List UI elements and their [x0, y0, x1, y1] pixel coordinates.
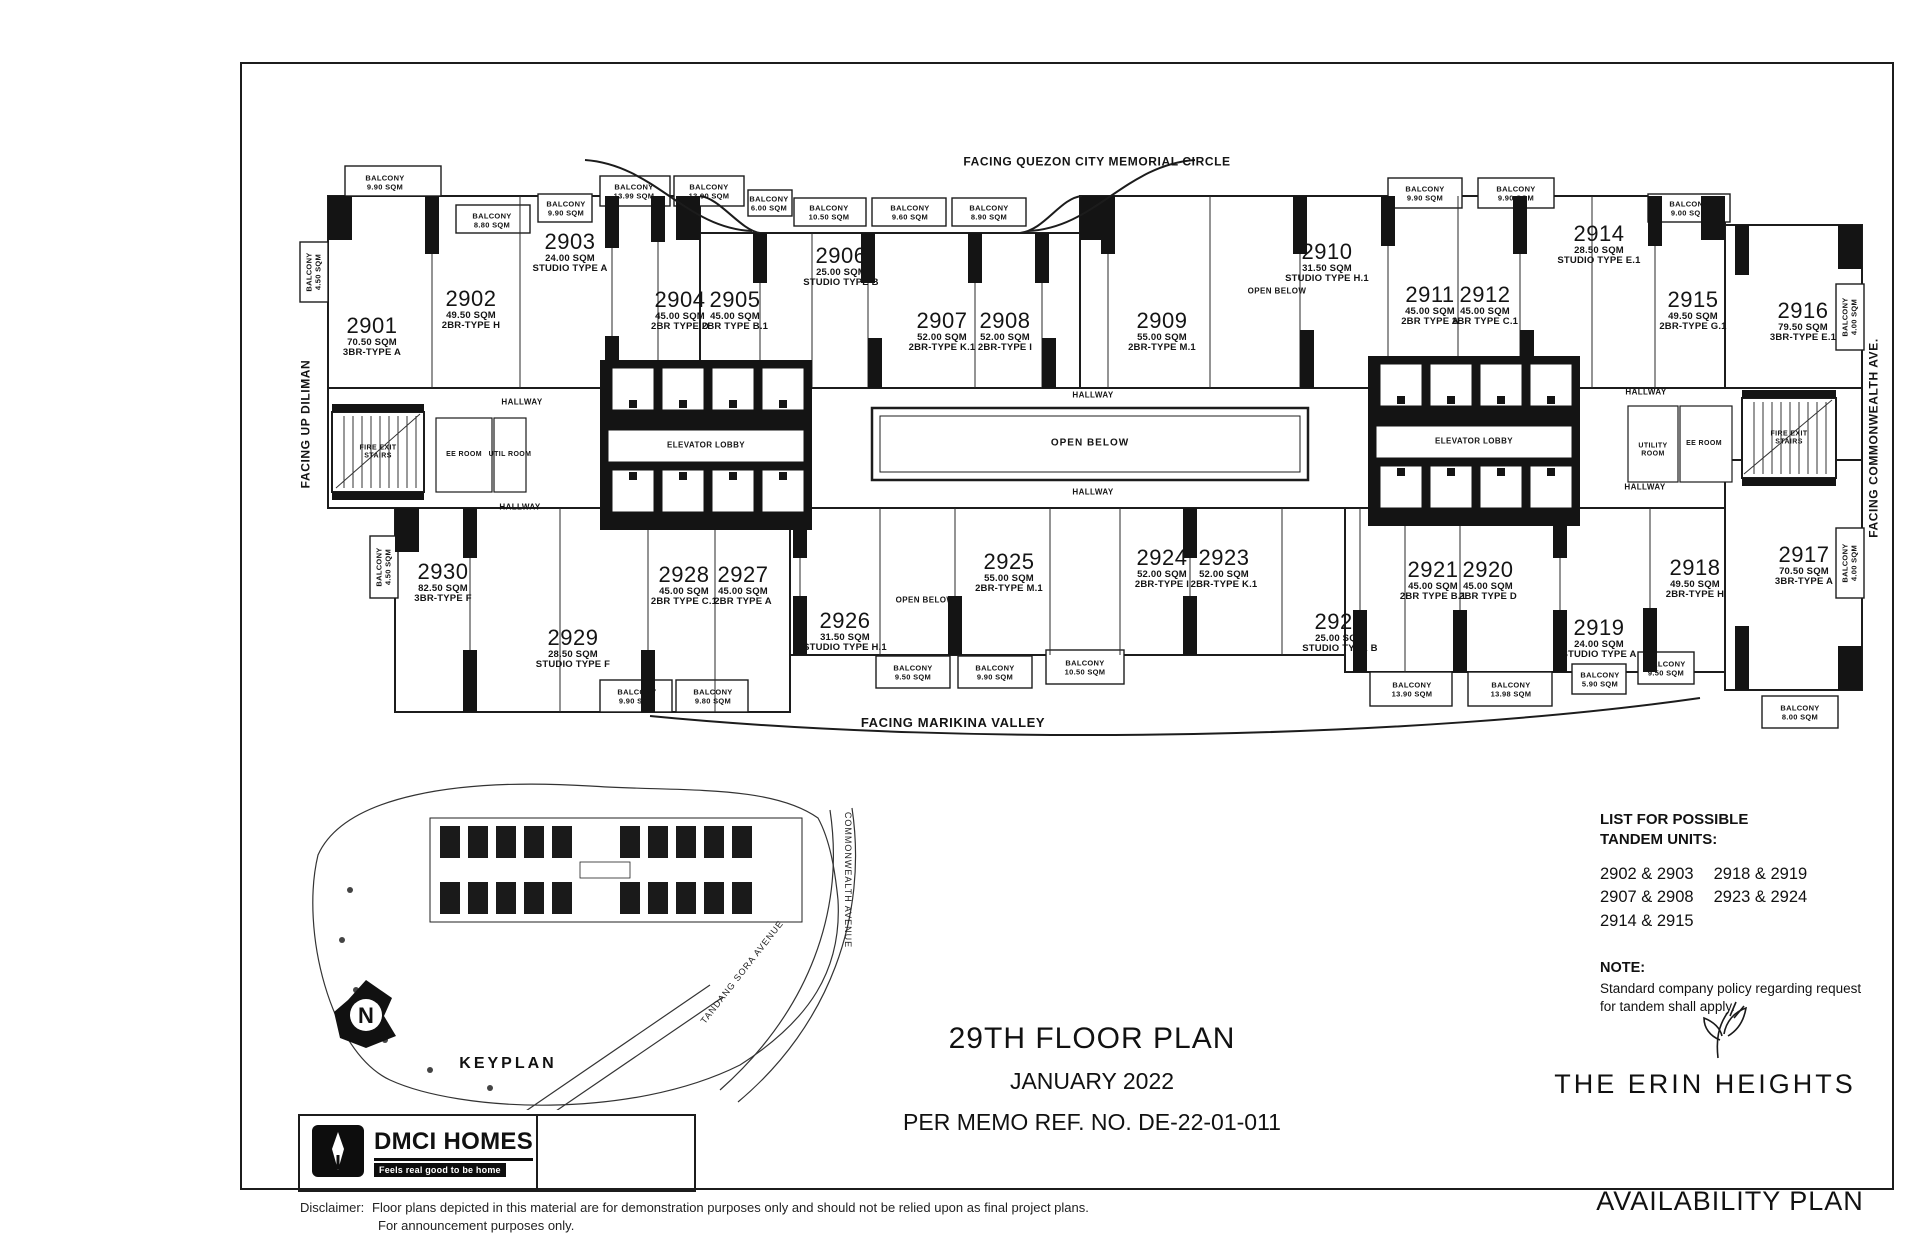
unit-label-2921: 292145.00 SQM2BR TYPE B.1	[1374, 558, 1492, 602]
elevator-lobby-label: ELEVATOR LOBBY	[667, 442, 745, 451]
ee-room-label: EE ROOM	[441, 451, 487, 459]
title-block: 29TH FLOOR PLAN JANUARY 2022 PER MEMO RE…	[877, 1022, 1307, 1136]
unit-type: 2BR TYPE C.1	[1426, 317, 1544, 327]
unit-number: 2925	[950, 550, 1068, 574]
tandem-pair: 2902 & 2903	[1600, 863, 1694, 887]
hallway-label: HALLWAY	[1625, 389, 1666, 398]
util-room-label: UTIL ROOM	[487, 451, 533, 459]
balcony-label: BALCONY4.00 SQM	[1841, 543, 1860, 582]
unit-label-2902: 290249.50 SQM2BR-TYPE H	[412, 287, 530, 331]
unit-number: 2908	[946, 309, 1064, 333]
keyplan-label: KEYPLAN	[459, 1055, 556, 1073]
unit-number: 2921	[1374, 558, 1492, 582]
tandem-pair: 2918 & 2919	[1714, 863, 1808, 887]
erin-heights-logo: THE ERIN HEIGHTS	[1545, 1000, 1865, 1100]
disclaimer-label: Disclaimer:	[300, 1200, 372, 1215]
open-below-label: OPEN BELOW	[1248, 288, 1307, 297]
hallway-label: HALLWAY	[501, 399, 542, 408]
balcony-label: BALCONY9.90 SQM	[1496, 185, 1535, 204]
balcony-label: BALCONY10.50 SQM	[809, 204, 850, 223]
open-below-label: OPEN BELOW	[1051, 439, 1129, 450]
balcony-label: BALCONY4.00 SQM	[1841, 297, 1860, 336]
balcony-label: BALCONY9.60 SQM	[890, 204, 929, 223]
unit-type: STUDIO TYPE A	[511, 264, 629, 274]
unit-label-2910: 291031.50 SQMSTUDIO TYPE H.1	[1268, 240, 1386, 284]
unit-type: STUDIO TYPE H.1	[1268, 274, 1386, 284]
unit-number: 2905	[676, 288, 794, 312]
brand-name: THE ERIN HEIGHTS	[1545, 1069, 1865, 1100]
unit-label-2903: 290324.00 SQMSTUDIO TYPE A	[511, 230, 629, 274]
unit-label-2918: 291849.50 SQM2BR-TYPE H	[1636, 556, 1754, 600]
unit-type: STUDIO TYPE E.1	[1540, 256, 1658, 266]
unit-label-2915: 291549.50 SQM2BR-TYPE G.1	[1634, 288, 1752, 332]
disclaimer: Disclaimer:Floor plans depicted in this …	[300, 1200, 1089, 1233]
unit-type: STUDIO TYPE A	[1540, 650, 1658, 660]
keyplan-drawing	[290, 770, 880, 1110]
unit-number: 2910	[1268, 240, 1386, 264]
balcony-label: BALCONY9.90 SQM	[365, 174, 404, 193]
unit-label-2909: 290955.00 SQM2BR-TYPE M.1	[1103, 309, 1221, 353]
hallway-label: HALLWAY	[499, 504, 540, 513]
north-arrow-icon: N	[330, 978, 402, 1050]
unit-number: 2906	[782, 244, 900, 268]
unit-label-2925: 292555.00 SQM2BR-TYPE M.1	[950, 550, 1068, 594]
unit-number: 2914	[1540, 222, 1658, 246]
unit-type: 2BR-TYPE H	[1636, 590, 1754, 600]
unit-number: 2924	[1103, 546, 1221, 570]
unit-label-2924: 292452.00 SQM2BR-TYPE I	[1103, 546, 1221, 590]
unit-type: 2BR-TYPE G.1	[1634, 322, 1752, 332]
floor-plan-date: JANUARY 2022	[877, 1068, 1307, 1095]
tandem-note-title: NOTE:	[1600, 960, 1880, 976]
floor-plan-title: 29TH FLOOR PLAN	[877, 1022, 1307, 1056]
floor-plan-sheet: N FACING QUEZON CITY MEMORIAL CIRCLE FAC…	[0, 0, 1920, 1256]
tandem-pair: 2907 & 2908	[1600, 886, 1694, 910]
ee-room-label: EE ROOM	[1681, 440, 1727, 448]
balcony-label: BALCONY5.90 SQM	[1580, 671, 1619, 690]
title-block-empty-cell	[534, 1114, 696, 1192]
unit-number: 2915	[1634, 288, 1752, 312]
unit-label-2928: 292845.00 SQM2BR TYPE C.1	[625, 563, 743, 607]
balcony-label: BALCONY4.50 SQM	[375, 547, 394, 586]
elevator-lobby-label: ELEVATOR LOBBY	[1435, 438, 1513, 447]
fire-exit-stairs-label: FIRE EXIT STAIRS	[1766, 430, 1812, 445]
hallway-label: HALLWAY	[1072, 392, 1113, 401]
dmci-icon	[312, 1125, 364, 1177]
unit-label-2908: 290852.00 SQM2BR-TYPE I	[946, 309, 1064, 353]
unit-type: 3BR-TYPE A	[313, 348, 431, 358]
tandem-pair: 2923 & 2924	[1714, 886, 1808, 910]
unit-type: 3BR-TYPE F	[384, 594, 502, 604]
unit-type: 2BR TYPE B.1	[1374, 592, 1492, 602]
open-below-label: OPEN BELOW	[896, 597, 955, 606]
fire-exit-stairs-label: FIRE EXIT STAIRS	[355, 444, 401, 459]
balcony-label: BALCONY9.90 SQM	[546, 200, 585, 219]
unit-type: 2BR-TYPE H	[412, 321, 530, 331]
unit-number: 2912	[1426, 283, 1544, 307]
balcony-label: BALCONY9.50 SQM	[1646, 660, 1685, 679]
dmci-logo-box: DMCI HOMES Feels real good to be home	[298, 1114, 538, 1192]
disclaimer-line1: Floor plans depicted in this material ar…	[372, 1200, 1089, 1215]
balcony-label: BALCONY13.99 SQM	[614, 183, 655, 202]
north-letter: N	[358, 1003, 374, 1028]
unit-number: 2926	[786, 609, 904, 633]
unit-type: 2BR TYPE C.1	[625, 597, 743, 607]
unit-number: 2922	[1281, 610, 1399, 634]
balcony-label: BALCONY8.80 SQM	[472, 212, 511, 231]
unit-number: 2918	[1636, 556, 1754, 580]
balcony-label: BALCONY9.00 SQM	[1669, 200, 1708, 219]
unit-label-2929: 292928.50 SQMSTUDIO TYPE F	[514, 626, 632, 670]
tandem-title-line2: TANDEM UNITS:	[1600, 830, 1880, 850]
memo-reference: PER MEMO REF. NO. DE-22-01-011	[877, 1109, 1307, 1136]
availability-plan-label: AVAILABILITY PLAN	[1580, 1186, 1880, 1217]
unit-type: 2BR-TYPE I	[946, 343, 1064, 353]
unit-number: 2930	[384, 560, 502, 584]
balcony-label: BALCONY8.90 SQM	[969, 204, 1008, 223]
balcony-label: BALCONY4.50 SQM	[305, 252, 324, 291]
unit-number: 2909	[1103, 309, 1221, 333]
utility-room-label: UTILITY ROOM	[1630, 442, 1676, 457]
tandem-pair: 2914 & 2915	[1600, 910, 1694, 934]
balcony-label: BALCONY9.90 SQM	[1405, 185, 1444, 204]
unit-type: 2BR-TYPE M.1	[1103, 343, 1221, 353]
unit-label-2926: 292631.50 SQMSTUDIO TYPE H.1	[786, 609, 904, 653]
facing-top-label: FACING QUEZON CITY MEMORIAL CIRCLE	[963, 156, 1230, 169]
facing-right-label: FACING COMMONWEALTH AVE.	[1868, 338, 1881, 538]
facing-left-label: FACING UP DILIMAN	[300, 360, 313, 489]
unit-number: 2902	[412, 287, 530, 311]
unit-label-2930: 293082.50 SQM3BR-TYPE F	[384, 560, 502, 604]
unit-label-2905: 290545.00 SQM2BR TYPE B.1	[676, 288, 794, 332]
balcony-label: BALCONY13.98 SQM	[1491, 681, 1532, 700]
disclaimer-line2: For announcement purposes only.	[378, 1218, 1089, 1233]
balcony-label: BALCONY8.00 SQM	[1780, 704, 1819, 723]
balcony-label: BALCONY9.80 SQM	[693, 688, 732, 707]
facing-bottom-label: FACING MARIKINA VALLEY	[861, 716, 1045, 730]
hallway-label: HALLWAY	[1624, 484, 1665, 493]
balcony-label: BALCONY9.90 SQM	[617, 688, 656, 707]
tandem-title-line1: LIST FOR POSSIBLE	[1600, 810, 1880, 830]
unit-type: STUDIO TYPE F	[514, 660, 632, 670]
leaf-icon	[1688, 1000, 1758, 1062]
unit-type: STUDIO TYPE H.1	[786, 643, 904, 653]
balcony-label: BALCONY9.90 SQM	[975, 664, 1014, 683]
unit-number: 2929	[514, 626, 632, 650]
unit-number: 2919	[1540, 616, 1658, 640]
unit-number: 2928	[625, 563, 743, 587]
balcony-label: BALCONY6.00 SQM	[749, 195, 788, 214]
balcony-label: BALCONY10.50 SQM	[1065, 659, 1106, 678]
dmci-name: DMCI HOMES	[374, 1128, 533, 1161]
balcony-label: BALCONY9.50 SQM	[893, 664, 932, 683]
unit-label-2919: 291924.00 SQMSTUDIO TYPE A	[1540, 616, 1658, 660]
tandem-pairs-column2: 2918 & 29192923 & 2924	[1714, 863, 1808, 935]
unit-type: STUDIO TYPE B	[1281, 644, 1399, 654]
unit-type: 2BR TYPE B.1	[676, 322, 794, 332]
unit-type: STUDIO TYPE B	[782, 278, 900, 288]
unit-label-2906: 290625.00 SQMSTUDIO TYPE B	[782, 244, 900, 288]
unit-type: 2BR-TYPE M.1	[950, 584, 1068, 594]
unit-label-2922: 292225.00 SQMSTUDIO TYPE B	[1281, 610, 1399, 654]
unit-type: 2BR-TYPE I	[1103, 580, 1221, 590]
tandem-pairs-column1: 2902 & 29032907 & 29082914 & 2915	[1600, 863, 1694, 935]
balcony-label: BALCONY13.90 SQM	[1392, 681, 1433, 700]
tandem-units-panel: LIST FOR POSSIBLE TANDEM UNITS: 2902 & 2…	[1600, 810, 1880, 1015]
balcony-label: BALCONY13.90 SQM	[689, 183, 730, 202]
unit-number: 2903	[511, 230, 629, 254]
unit-label-2914: 291428.50 SQMSTUDIO TYPE E.1	[1540, 222, 1658, 266]
dmci-tagline: Feels real good to be home	[374, 1163, 506, 1177]
unit-label-2912: 291245.00 SQM2BR TYPE C.1	[1426, 283, 1544, 327]
hallway-label: HALLWAY	[1072, 489, 1113, 498]
road-label-commonwealth: COMMONWEALTH AVENUE	[843, 812, 853, 948]
